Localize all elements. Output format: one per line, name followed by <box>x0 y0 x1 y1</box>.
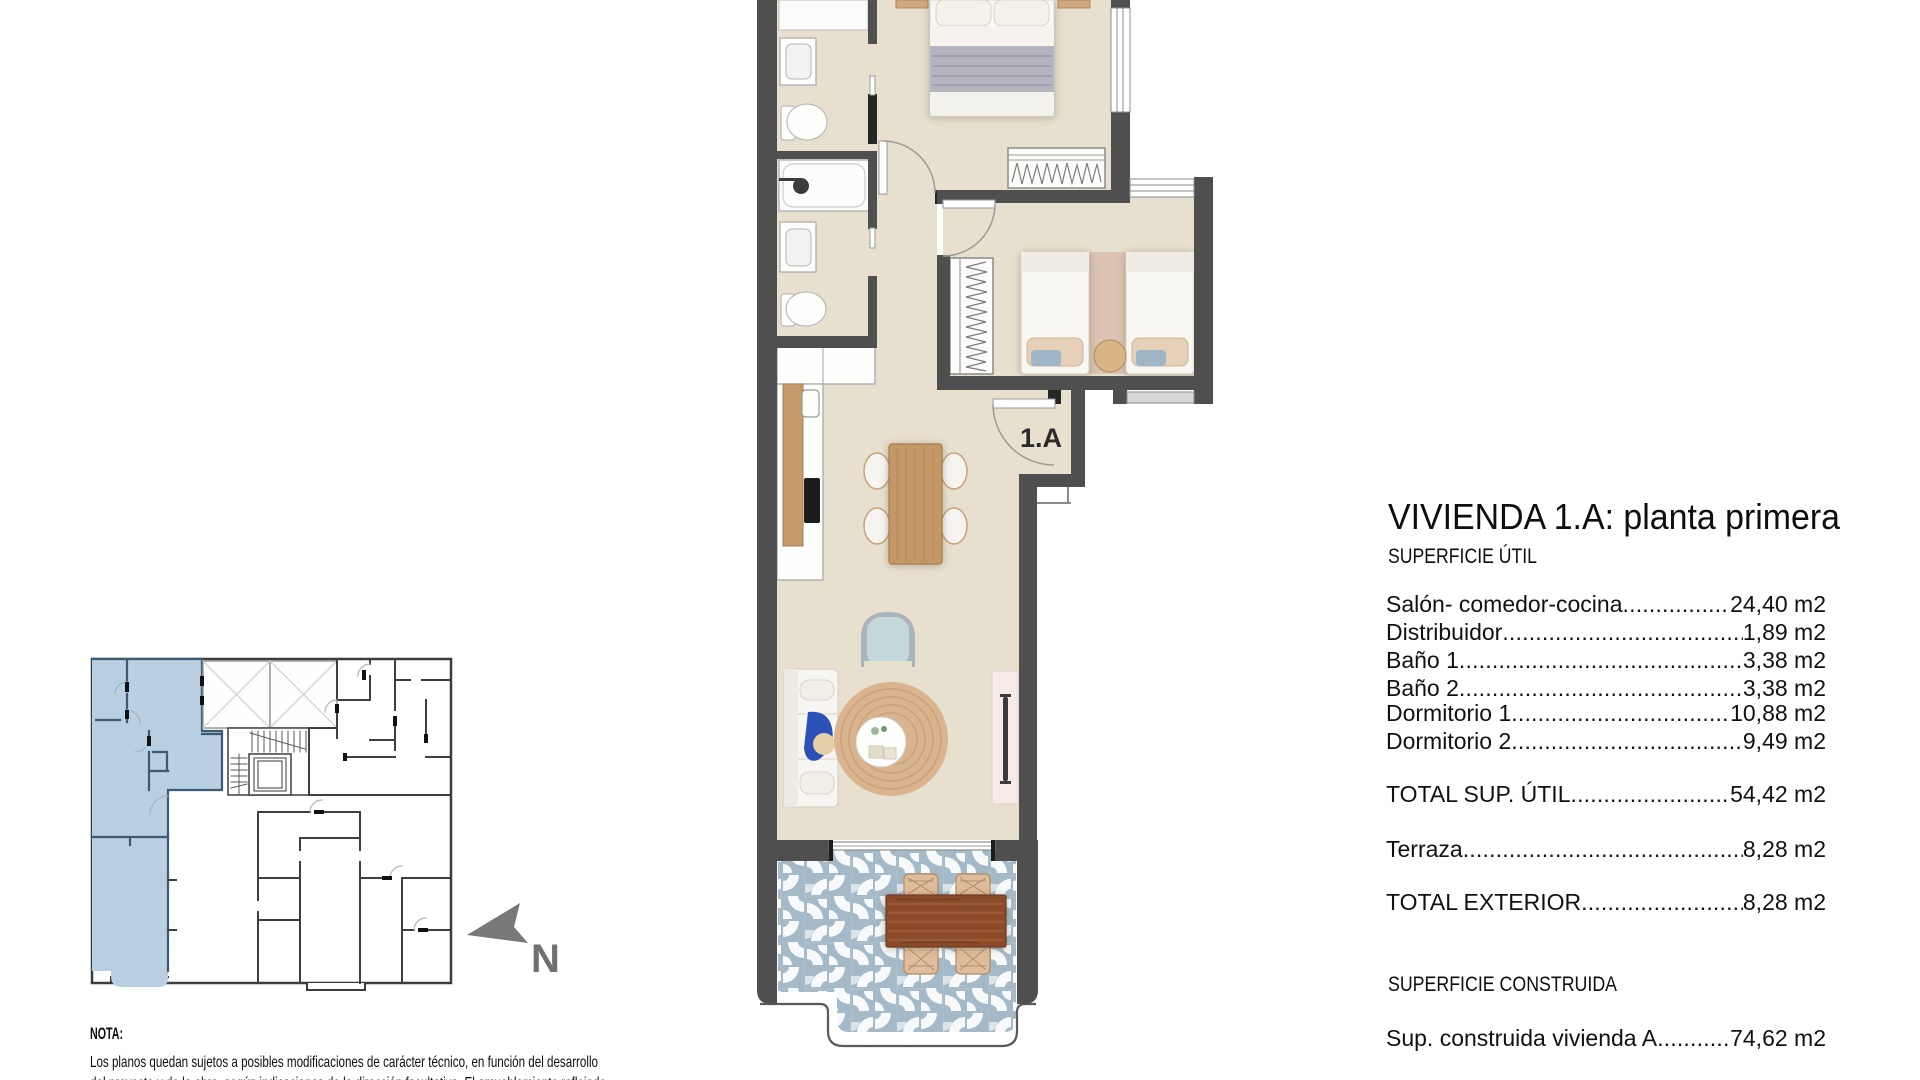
svg-text:1.A: 1.A <box>1020 423 1062 453</box>
svg-text:N: N <box>531 937 560 981</box>
